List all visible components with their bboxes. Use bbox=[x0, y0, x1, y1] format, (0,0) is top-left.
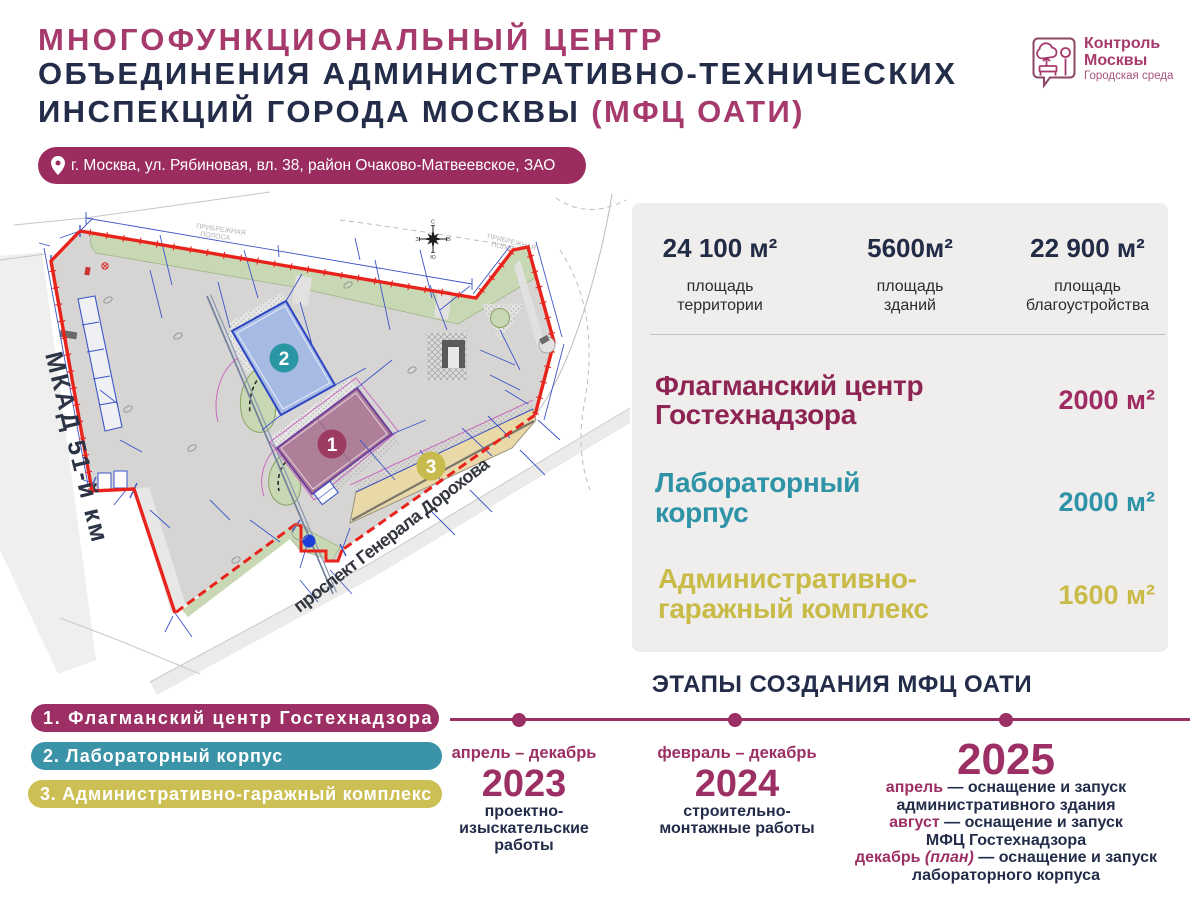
svg-text:З: З bbox=[415, 237, 419, 243]
svg-text:В: В bbox=[447, 237, 451, 243]
svg-text:Ю: Ю bbox=[430, 255, 436, 261]
svg-text:С: С bbox=[431, 220, 435, 226]
svg-text:2: 2 bbox=[279, 349, 290, 370]
svg-text:3: 3 bbox=[426, 457, 437, 478]
svg-text:1: 1 bbox=[327, 435, 338, 456]
